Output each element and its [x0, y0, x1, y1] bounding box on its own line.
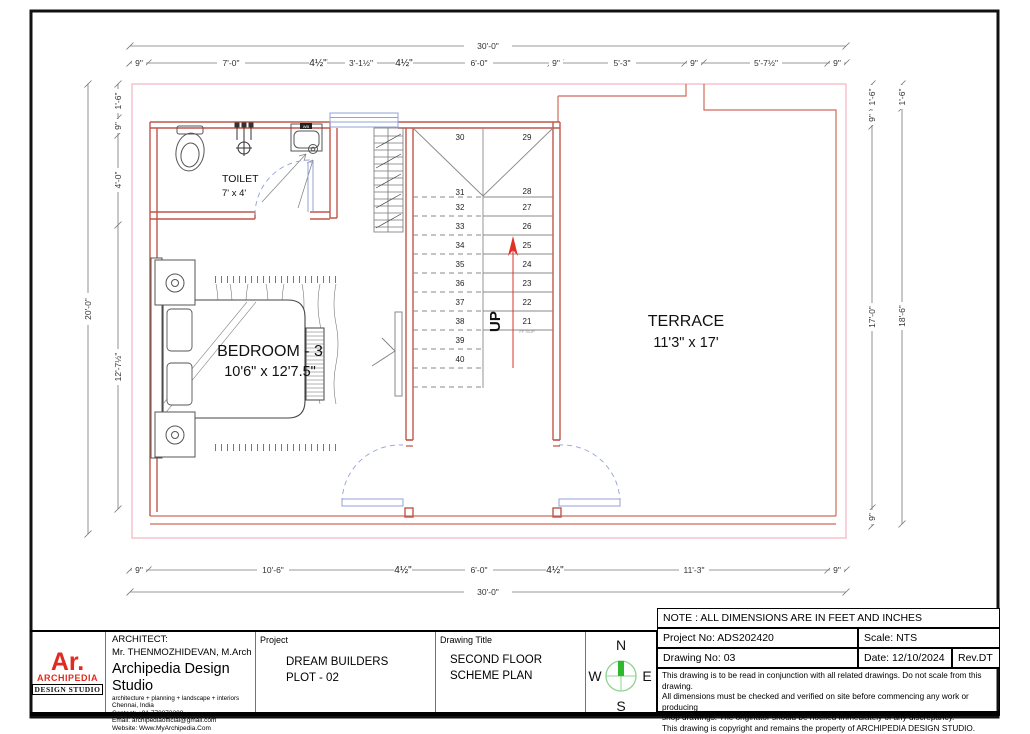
svg-text:4½": 4½" [309, 58, 327, 69]
title-block-bottom-rule [30, 712, 1000, 716]
compass-icon: N S W E [586, 632, 656, 714]
svg-text:9": 9" [867, 114, 877, 122]
rev-cell: Rev.DT [952, 648, 1000, 668]
architect-cell: ARCHITECT: Mr. THENMOZHIDEVAN, M.Arch Ar… [106, 632, 256, 714]
date-cell: Date: 12/10/2024 [858, 648, 952, 668]
compass-w: W [588, 668, 602, 684]
note-row: NOTE : ALL DIMENSIONS ARE IN FEET AND IN… [657, 608, 1000, 628]
dim-top-total: 30'-0" [477, 41, 499, 51]
svg-text:24: 24 [523, 260, 532, 269]
washbasin-label: WB [303, 124, 310, 129]
compass-cell: N S W E [586, 632, 657, 714]
scale-cell: Scale: NTS [858, 628, 1000, 648]
leader-arrows [262, 154, 313, 208]
svg-text:21: 21 [523, 317, 532, 326]
compass-e: E [642, 668, 651, 684]
studio-city: Chennai, India [112, 702, 255, 709]
bedroom-size: 10'6" x 12'7.5" [224, 364, 316, 380]
project-name-line2: PLOT - 02 [286, 671, 435, 687]
svg-text:23: 23 [523, 279, 532, 288]
svg-text:10'-6": 10'-6" [262, 565, 284, 575]
svg-text:12'-7½": 12'-7½" [113, 353, 123, 382]
svg-text:37: 37 [456, 298, 465, 307]
project-no-text: Project No: ADS202420 [663, 632, 774, 644]
svg-text:4½": 4½" [546, 565, 564, 576]
svg-text:29: 29 [523, 133, 532, 142]
staircase [413, 128, 553, 388]
archipedia-logo: Ar. ARCHIPEDIA DESIGN STUDIO [30, 632, 105, 714]
svg-text:9": 9" [552, 58, 560, 68]
svg-text:22: 22 [523, 298, 532, 307]
terrace-label: TERRACE [648, 313, 724, 330]
svg-text:17'-0": 17'-0" [867, 306, 877, 328]
svg-text:5'-3": 5'-3" [614, 58, 631, 68]
svg-text:26: 26 [523, 222, 532, 231]
svg-text:32: 32 [456, 203, 465, 212]
svg-text:9": 9" [833, 58, 841, 68]
svg-text:34: 34 [456, 241, 465, 250]
svg-text:31: 31 [456, 188, 465, 197]
svg-text:11'-3": 11'-3" [683, 565, 704, 575]
note-text: NOTE : ALL DIMENSIONS ARE IN FEET AND IN… [663, 612, 922, 624]
title-block-right: NOTE : ALL DIMENSIONS ARE IN FEET AND IN… [657, 608, 1000, 712]
architect-label: ARCHITECT: [112, 635, 255, 646]
svg-text:6'-0": 6'-0" [471, 58, 488, 68]
terrace-door-right-icon [553, 440, 620, 506]
disclaimer-line: This drawing is to be read in conjunctio… [662, 671, 995, 692]
svg-text:25: 25 [523, 241, 532, 250]
window-icon [330, 113, 398, 127]
compass-n: N [616, 637, 626, 653]
svg-text:9": 9" [867, 513, 877, 521]
terrace-size: 11'3" x 17' [653, 335, 718, 351]
project-no-cell: Project No: ADS202420 [657, 628, 858, 648]
hall-door-left-icon [342, 440, 413, 506]
svg-text:4'-0": 4'-0" [113, 172, 123, 189]
dim-left-total: 20'-0" [83, 298, 93, 320]
drawing-title-cell: Drawing Title SECOND FLOOR SCHEME PLAN [436, 632, 586, 714]
logo-design-studio-text: DESIGN STUDIO [32, 684, 104, 695]
date-text: Date: 12/10/2024 [864, 652, 945, 664]
svg-text:4½": 4½" [395, 58, 413, 69]
logo-cell: Ar. ARCHIPEDIA DESIGN STUDIO [30, 632, 106, 714]
svg-text:33: 33 [456, 222, 465, 231]
toilet-label: TOILET [222, 173, 259, 185]
svg-text:18'-6": 18'-6" [897, 305, 907, 327]
up-arrow-icon [508, 236, 518, 368]
dim-bottom-total: 30'-0" [477, 587, 499, 597]
studio-email: Email: archipediaofficial@gmail.com [112, 717, 255, 724]
svg-text:36: 36 [456, 279, 465, 288]
drawing-no-text: Drawing No: 03 [663, 652, 735, 664]
disclaimer-line: All dimensions must be checked and verif… [662, 692, 995, 713]
title-block-left: Ar. ARCHIPEDIA DESIGN STUDIO ARCHITECT: … [30, 630, 657, 712]
project-name-line1: DREAM BUILDERS [286, 655, 435, 671]
bedroom-label: BEDROOM - 3 [217, 343, 323, 360]
svg-text:9": 9" [135, 565, 143, 575]
drawing-title-line2: SCHEME PLAN [450, 669, 585, 685]
drawing-no-cell: Drawing No: 03 [657, 648, 858, 668]
svg-text:7'-0": 7'-0" [223, 58, 240, 68]
stair-note: FF S/UP [519, 329, 535, 334]
svg-text:1'-6": 1'-6" [867, 89, 877, 106]
svg-text:9": 9" [690, 58, 698, 68]
studio-name: Archipedia Design Studio [112, 661, 255, 694]
svg-text:5'-7½": 5'-7½" [754, 58, 778, 68]
architect-name: Mr. THENMOZHIDEVAN, M.Arch [112, 648, 255, 659]
title-block: NOTE : ALL DIMENSIONS ARE IN FEET AND IN… [30, 608, 1000, 717]
svg-text:35: 35 [456, 260, 465, 269]
studio-website: Website: Www.MyArchipedia.Com [112, 725, 255, 732]
project-cell: Project DREAM BUILDERS PLOT - 02 [256, 632, 436, 714]
svg-text:9": 9" [113, 122, 123, 130]
drawing-title-line1: SECOND FLOOR [450, 653, 585, 669]
svg-text:28: 28 [523, 187, 532, 196]
svg-text:1'-6": 1'-6" [897, 89, 907, 106]
drawing-title-label: Drawing Title [436, 632, 585, 645]
svg-text:1'-6": 1'-6" [113, 93, 123, 110]
nightstand-bottom-icon [155, 412, 195, 457]
svg-text:27: 27 [523, 203, 532, 212]
svg-text:39: 39 [456, 336, 465, 345]
rev-text: Rev.DT [958, 652, 993, 664]
toilet-wc-icon [173, 126, 206, 173]
svg-text:4½": 4½" [394, 565, 412, 576]
svg-text:3'-1½": 3'-1½" [349, 58, 373, 68]
logo-ar-text: Ar. [51, 651, 84, 674]
svg-text:30: 30 [456, 133, 465, 142]
disclaimer-box: This drawing is to be read in conjunctio… [657, 668, 1000, 712]
svg-text:38: 38 [456, 317, 465, 326]
studio-tagline: architecture + planning + landscape + in… [112, 695, 255, 702]
up-label: UP [487, 311, 504, 332]
bedroom-door-icon [372, 312, 402, 396]
svg-text:9": 9" [833, 565, 841, 575]
svg-text:40: 40 [456, 355, 465, 364]
scale-text: Scale: NTS [864, 632, 917, 644]
project-label: Project [256, 632, 435, 645]
toilet-size: 7' x 4' [222, 188, 246, 199]
nightstand-top-icon [155, 260, 195, 305]
svg-text:6'-0": 6'-0" [471, 565, 488, 575]
logo-archipedia-text: ARCHIPEDIA [37, 673, 98, 683]
svg-text:9": 9" [135, 58, 143, 68]
hatch-shaft-icon [374, 128, 403, 232]
